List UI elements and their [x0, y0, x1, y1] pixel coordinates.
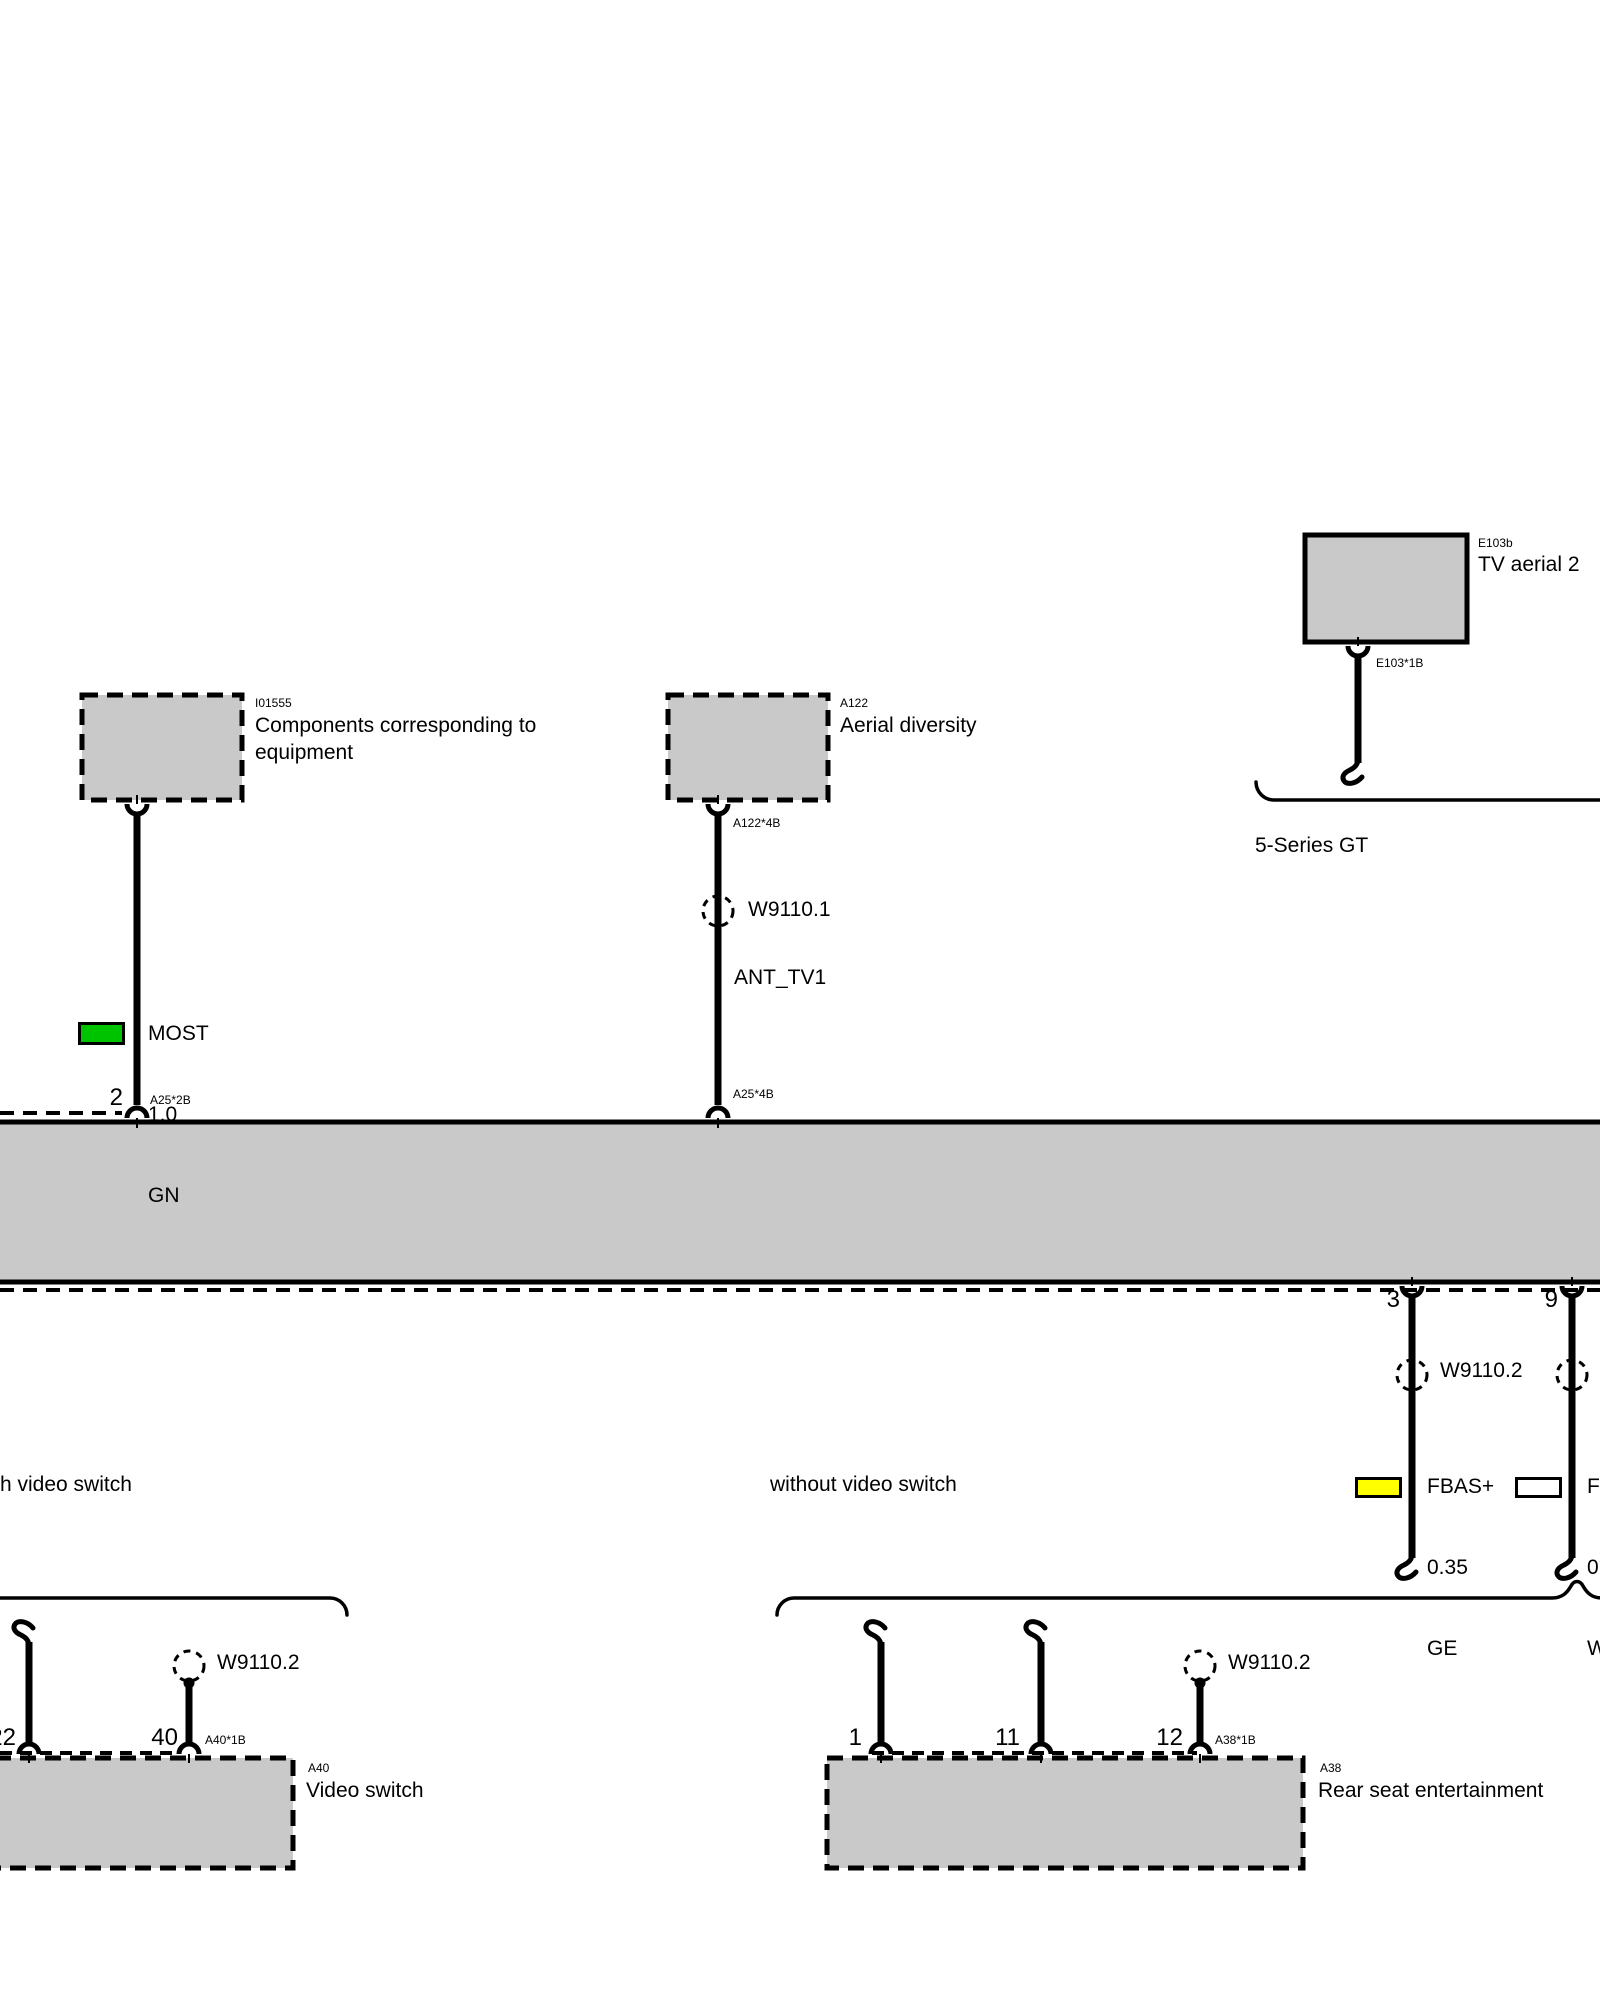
connector-cup-i01555	[127, 804, 147, 814]
squiggle-pin1	[866, 1622, 885, 1650]
splice-label-w9110-2-main: W9110.2	[1440, 1357, 1523, 1384]
splice-w9110-2-video	[174, 1651, 204, 1681]
fbas-minus-color-code: WS	[1587, 1635, 1600, 1662]
aerial-diversity-label: Aerial diversity	[840, 712, 977, 739]
rear-seat-code: A38	[1320, 1762, 1341, 1775]
video-switch-code: A40	[308, 1762, 329, 1775]
wire-label-fbas-plus: FBAS+ 0.35 GE	[1427, 1419, 1494, 1716]
components-equipment-box	[82, 695, 242, 800]
pin-label-1: 1	[814, 1726, 862, 1750]
fbas-minus-color-swatch	[1515, 1477, 1562, 1498]
splice-w9110-2-rear	[1185, 1651, 1215, 1681]
pin-label-9: 9	[1510, 1288, 1558, 1312]
fbas-plus-color-code: GE	[1427, 1635, 1494, 1662]
wiring-diagram-page: E103b TV aerial 2 E103*1B 5-Series GT I0…	[0, 0, 1600, 2000]
brace-with-video-switch	[0, 1598, 347, 1615]
brace-5-series-gt	[1256, 782, 1600, 800]
splice-label-w9110-1: W9110.1	[748, 896, 831, 923]
squiggle-pin11	[1026, 1622, 1045, 1650]
tv-aerial-2-box	[1305, 535, 1467, 642]
most-name: MOST	[148, 1020, 209, 1047]
pin-label-11: 11	[972, 1726, 1020, 1750]
caption-5-series-gt: 5-Series GT	[1255, 832, 1368, 859]
connector-cup-a25-2b	[127, 1108, 147, 1118]
squiggle-tv-wire	[1343, 755, 1362, 783]
pin-label-3: 3	[1352, 1288, 1400, 1312]
connector-cup-a25-4b	[708, 1108, 728, 1118]
most-color-swatch	[78, 1022, 125, 1045]
connector-cup-a122-4b	[708, 804, 728, 814]
components-code: I01555	[255, 697, 292, 710]
connector-cup-a40-1b	[179, 1744, 199, 1754]
tv-aerial-label: TV aerial 2	[1478, 551, 1580, 578]
connector-label-a25-2b: A25*2B	[150, 1094, 191, 1107]
connector-label-a122-4b: A122*4B	[733, 817, 780, 830]
connector-label-a38-1b: A38*1B	[1215, 1734, 1256, 1747]
aerial-diversity-code: A122	[840, 697, 868, 710]
components-label: Components corresponding to equipment	[255, 712, 550, 766]
diagram-canvas	[0, 0, 1600, 2000]
fbas-plus-color-swatch	[1355, 1477, 1402, 1498]
pin-label-40: 40	[130, 1726, 178, 1750]
squiggle-fbas-plus	[1397, 1550, 1416, 1578]
fbas-minus-size: 0.35	[1587, 1554, 1600, 1581]
rear-seat-label: Rear seat entertainment	[1318, 1777, 1543, 1804]
connector-cup-e103-1b	[1348, 646, 1368, 656]
connector-label-a40-1b: A40*1B	[205, 1734, 246, 1747]
connector-label-a25-4b: A25*4B	[733, 1088, 774, 1101]
tv-aerial-code: E103b	[1478, 537, 1513, 550]
fbas-plus-name: FBAS+	[1427, 1473, 1494, 1500]
splice-label-w9110-2-rear: W9110.2	[1228, 1649, 1311, 1676]
pin-label-12: 12	[1135, 1726, 1183, 1750]
rear-seat-entertainment-box	[827, 1758, 1303, 1868]
video-switch-label: Video switch	[306, 1777, 424, 1804]
aerial-diversity-box	[668, 695, 828, 800]
connector-label-e103-1b: E103*1B	[1376, 657, 1423, 670]
wire-label-fbas-minus: FBAS- 0.35 WS	[1587, 1419, 1600, 1716]
splice-label-w9110-2-video: W9110.2	[217, 1649, 300, 1676]
control-unit-band	[0, 1122, 1600, 1282]
caption-with-video-switch: h video switch	[0, 1471, 132, 1498]
squiggle-fbas-minus	[1557, 1550, 1576, 1578]
pin-label-22: 22	[0, 1726, 16, 1750]
video-switch-box	[0, 1758, 293, 1868]
pin-label-2: 2	[75, 1086, 123, 1110]
most-color-code: GN	[148, 1182, 209, 1209]
splice-dot-video	[184, 1678, 195, 1689]
fbas-minus-name: FBAS-	[1587, 1473, 1600, 1500]
squiggle-pin22	[14, 1622, 33, 1650]
wire-label-most: MOST 1.0 GN	[148, 966, 209, 1263]
fbas-plus-size: 0.35	[1427, 1554, 1494, 1581]
splice-dot-rear	[1195, 1678, 1206, 1689]
caption-without-video-switch: without video switch	[770, 1471, 957, 1498]
wire-label-ant-tv1: ANT_TV1	[734, 964, 826, 991]
